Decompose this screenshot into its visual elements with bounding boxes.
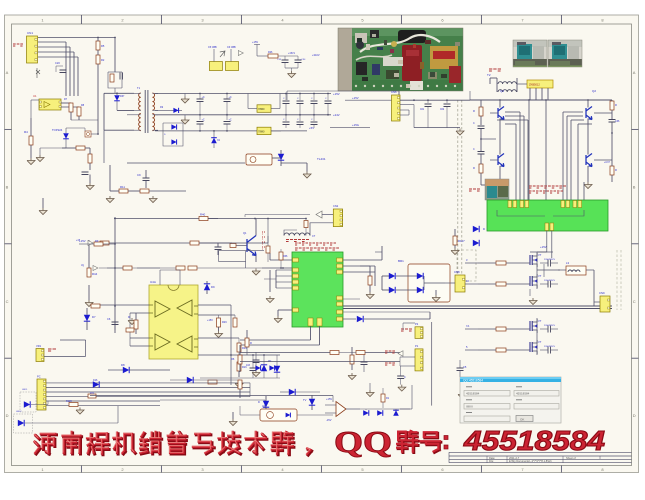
svg-text:P2: P2 xyxy=(415,322,419,326)
svg-text:CN8: CN8 xyxy=(454,270,460,274)
svg-text:VT: VT xyxy=(538,340,542,344)
svg-text:+15V: +15V xyxy=(333,92,340,96)
svg-text:+15V: +15V xyxy=(326,397,332,401)
svg-text:OK: OK xyxy=(520,417,524,421)
svg-text:Q1: Q1 xyxy=(243,231,247,235)
svg-text:Q2: Q2 xyxy=(592,89,596,93)
svg-text:2200P/2KV: 2200P/2KV xyxy=(544,346,556,348)
svg-text:CT: CT xyxy=(312,235,316,238)
svg-text:78M0: 78M0 xyxy=(258,129,265,133)
svg-text:-15V: -15V xyxy=(326,418,332,422)
svg-text:R: R xyxy=(250,341,252,345)
svg-text:45518584: 45518584 xyxy=(516,392,530,396)
svg-text:CN6: CN6 xyxy=(391,90,397,94)
svg-text:A: A xyxy=(633,70,636,75)
svg-text:2200P/2KV: 2200P/2KV xyxy=(544,325,556,327)
svg-text:U4A: U4A xyxy=(150,280,156,284)
svg-text:LED1: LED1 xyxy=(22,389,28,391)
svg-text:E:\My Documents\..2*7*2*7*8.1.: E:\My Documents\..2*7*2*7*8.1.8Sch xyxy=(509,459,552,463)
svg-text:R: R xyxy=(128,315,130,319)
svg-text:D: D xyxy=(6,413,9,418)
svg-text:C61: C61 xyxy=(420,109,425,111)
svg-text:C: C xyxy=(473,148,475,151)
svg-text:+C37: +C37 xyxy=(604,161,610,164)
svg-text:C: C xyxy=(404,376,406,379)
svg-text:+15V: +15V xyxy=(207,319,213,322)
svg-text:R44: R44 xyxy=(92,272,98,276)
svg-text:7A: 7A xyxy=(466,324,469,328)
svg-text:C20: C20 xyxy=(55,61,60,65)
svg-text:B: B xyxy=(6,184,9,189)
svg-text:D9: D9 xyxy=(211,285,215,289)
svg-text:File:: File: xyxy=(489,459,494,463)
svg-text:C62: C62 xyxy=(440,109,445,111)
svg-text:R36: R36 xyxy=(283,255,288,258)
svg-text:+15V: +15V xyxy=(352,96,359,100)
svg-text:+C: +C xyxy=(229,119,232,122)
svg-text:+15V1: +15V1 xyxy=(288,52,296,55)
svg-text:+C: +C xyxy=(202,119,205,122)
svg-text:R5: R5 xyxy=(101,44,105,48)
svg-text:C36: C36 xyxy=(615,120,620,123)
svg-text:IIIIIIII: IIIIIIII xyxy=(466,405,473,409)
svg-text:C9: C9 xyxy=(137,173,141,177)
svg-text:PC: PC xyxy=(37,375,41,379)
svg-text:R: R xyxy=(473,109,475,113)
svg-text:Q1: Q1 xyxy=(500,89,504,93)
svg-text:R71: R71 xyxy=(90,392,95,395)
svg-text:D7: D7 xyxy=(92,315,96,319)
svg-text:R4: R4 xyxy=(24,130,28,134)
svg-text:U1: U1 xyxy=(33,94,37,98)
svg-text:CN1: CN1 xyxy=(27,31,33,35)
svg-text:ZKB5012: ZKB5012 xyxy=(529,83,540,87)
svg-text:78M0: 78M0 xyxy=(258,107,265,111)
svg-text:D67: D67 xyxy=(120,95,125,98)
svg-text:R120: R120 xyxy=(66,400,72,403)
svg-text:T2: T2 xyxy=(487,73,491,77)
svg-text:+15V: +15V xyxy=(79,239,86,243)
svg-text:+310V: +310V xyxy=(312,53,320,57)
svg-text:R40: R40 xyxy=(200,213,206,217)
svg-text:+C34: +C34 xyxy=(300,59,306,61)
svg-text:P1: P1 xyxy=(415,344,419,348)
svg-text:2011-2-7: 2011-2-7 xyxy=(509,456,520,460)
svg-text:C: C xyxy=(633,299,636,304)
svg-text:R6: R6 xyxy=(231,357,235,361)
svg-text:45518584: 45518584 xyxy=(463,425,605,456)
svg-text:VT: VT xyxy=(538,253,542,257)
svg-text:VT: VT xyxy=(538,274,542,278)
svg-text:CN2: CN2 xyxy=(333,204,339,208)
svg-text:+15V: +15V xyxy=(540,245,547,249)
svg-text:R9: R9 xyxy=(95,239,99,243)
svg-text:VR1: VR1 xyxy=(36,344,42,348)
svg-text:VT: VT xyxy=(538,319,542,323)
svg-text:Date:: Date: xyxy=(489,456,495,460)
svg-text:CN9: CN9 xyxy=(599,291,605,295)
svg-text:C5: C5 xyxy=(463,365,467,369)
svg-text:BR1: BR1 xyxy=(398,259,404,263)
svg-text:D8: D8 xyxy=(121,363,125,367)
svg-text:Sheet of: Sheet of xyxy=(566,456,576,460)
svg-text:A: A xyxy=(6,70,9,75)
svg-text:B: B xyxy=(633,184,636,189)
svg-text:C6: C6 xyxy=(107,317,111,321)
svg-text:+5V: +5V xyxy=(309,126,314,130)
svg-text:2200P/2KV: 2200P/2KV xyxy=(544,259,556,261)
svg-text:D: D xyxy=(483,227,485,231)
svg-text:D: D xyxy=(633,413,636,418)
svg-text:R: R xyxy=(615,168,617,172)
svg-text:TOP224: TOP224 xyxy=(52,128,63,132)
svg-text:D: D xyxy=(258,400,260,404)
svg-text:R26: R26 xyxy=(268,51,273,54)
svg-text:R2: R2 xyxy=(101,58,105,62)
svg-text:45518584: 45518584 xyxy=(466,392,480,396)
svg-text:R19: R19 xyxy=(242,347,247,350)
svg-text:R107: R107 xyxy=(458,239,465,243)
svg-text:U7: U7 xyxy=(262,404,266,408)
svg-text:R: R xyxy=(615,103,617,107)
svg-text:D16: D16 xyxy=(93,379,98,382)
svg-text:C: C xyxy=(473,122,475,125)
svg-text:+15V: +15V xyxy=(252,40,258,44)
svg-text:C6 CBB: C6 CBB xyxy=(227,46,236,49)
svg-text:TV: TV xyxy=(303,398,307,402)
svg-text:C: C xyxy=(6,299,9,304)
svg-text:+C: +C xyxy=(229,96,232,99)
svg-text:L3: L3 xyxy=(566,261,570,265)
svg-text:QQ: QQ xyxy=(334,424,392,459)
svg-text:R29: R29 xyxy=(222,321,227,324)
svg-text:R11: R11 xyxy=(120,185,125,189)
svg-text:R: R xyxy=(473,166,475,170)
svg-text:C5 CBB: C5 CBB xyxy=(208,46,217,49)
svg-text:+24V: +24V xyxy=(333,113,340,117)
svg-text:+C: +C xyxy=(202,96,205,99)
svg-text:TL431: TL431 xyxy=(317,157,326,161)
svg-text:QQ:45518584: QQ:45518584 xyxy=(463,378,483,382)
svg-text:+15G: +15G xyxy=(352,123,359,127)
svg-text:LED2: LED2 xyxy=(16,411,22,413)
svg-text:2200P/2KV: 2200P/2KV xyxy=(544,280,556,282)
svg-text:103: 103 xyxy=(246,364,251,367)
